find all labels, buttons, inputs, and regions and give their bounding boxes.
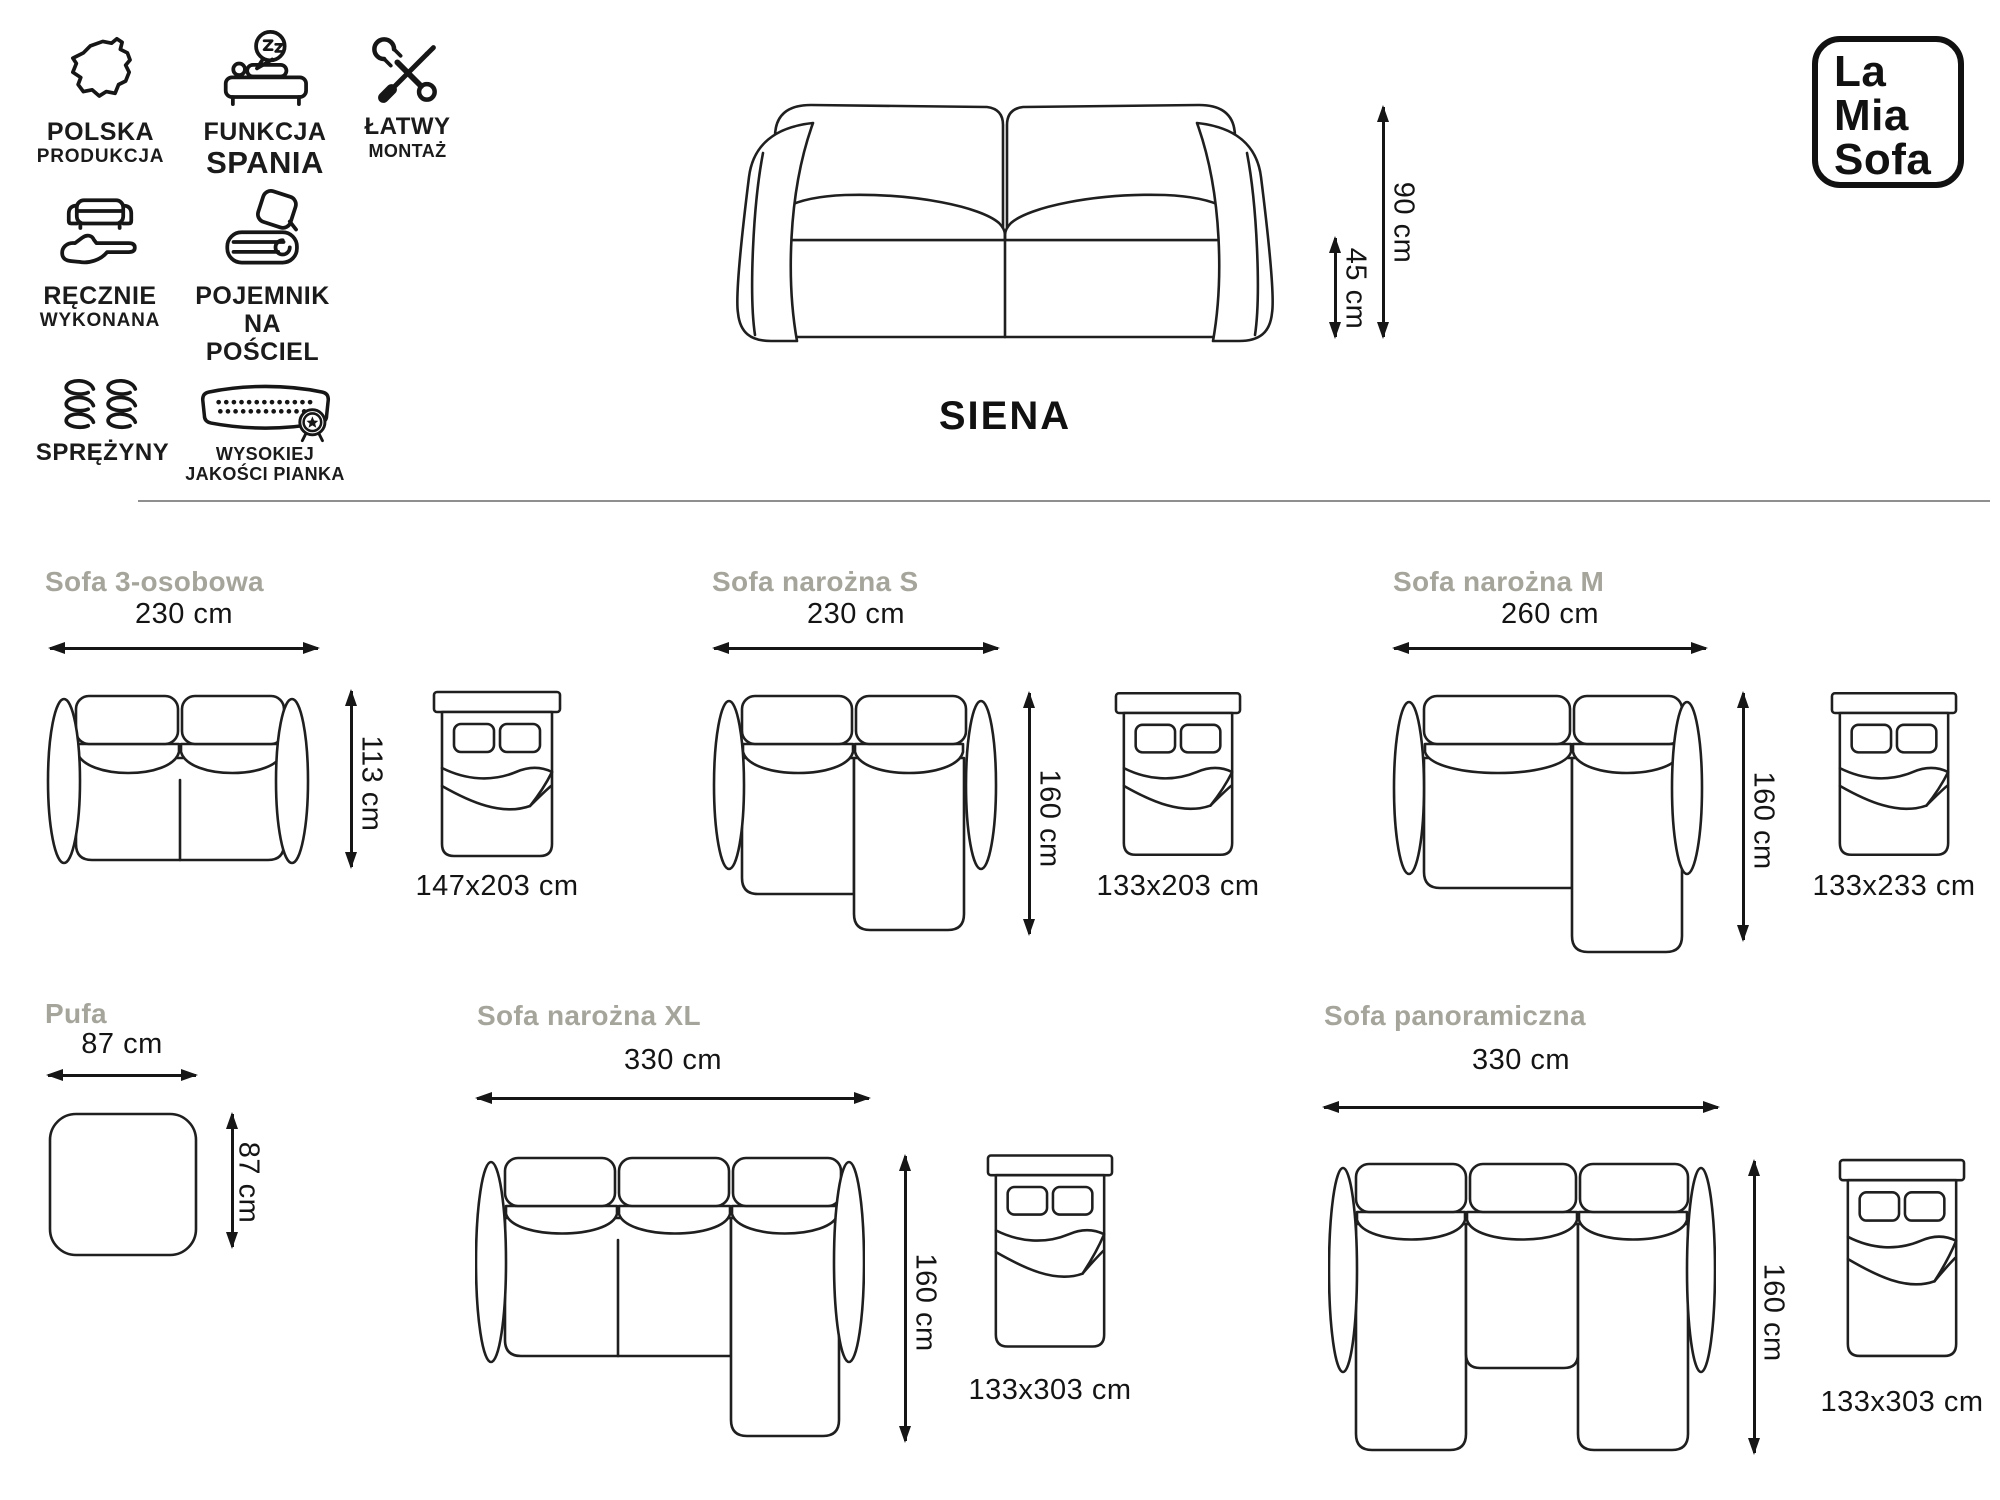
tools-icon — [367, 32, 449, 114]
depth-dimension-arrow — [1742, 693, 1745, 940]
width-dimension-arrow — [48, 1074, 196, 1077]
sofa-top-view-drawing — [44, 688, 312, 866]
feature-label: RĘCZNIE — [43, 282, 156, 310]
width-dimension-label: 260 cm — [1394, 598, 1706, 631]
width-dimension-label: 87 cm — [48, 1028, 196, 1061]
sofa-top-view-drawing — [475, 1152, 865, 1442]
feature-label: POLSKA — [47, 118, 154, 146]
feature-label: JAKOŚCI PIANKA — [185, 464, 345, 484]
feature-polska-produkcja: POLSKA PRODUKCJA — [33, 30, 168, 167]
bed-size-label: 133x303 cm — [1802, 1386, 2000, 1419]
depth-dimension-label: 160 cm — [1033, 770, 1066, 860]
variant-sofa-3-osobowa: Sofa 3-osobowa 230 cm 113 cm — [30, 560, 630, 920]
variant-name: Pufa — [45, 998, 107, 1030]
feature-label: NA POŚCIEL — [185, 310, 340, 366]
height-dimension-label: 90 cm — [1387, 178, 1420, 268]
depth-dimension-arrow — [904, 1156, 907, 1441]
feature-label: SPANIA — [206, 146, 324, 181]
feature-label: FUNKCJA — [204, 118, 327, 146]
depth-dimension-label: 160 cm — [1757, 1264, 1790, 1354]
width-dimension-arrow — [50, 647, 318, 650]
depth-dimension-arrow — [350, 691, 353, 867]
section-divider — [138, 500, 1990, 502]
feature-label: WYKONANA — [40, 310, 160, 331]
feature-recznie-wykonana: RĘCZNIE WYKONANA — [30, 190, 170, 331]
variant-name: Sofa panoramiczna — [1324, 1000, 1586, 1032]
foam-quality-icon — [188, 372, 343, 444]
logo-line: La — [1834, 50, 1958, 94]
bed-size-label: 133x303 cm — [950, 1374, 1150, 1407]
height-dimension-arrow — [1382, 107, 1385, 337]
variant-name: Sofa 3-osobowa — [45, 566, 264, 598]
width-dimension-arrow — [1394, 647, 1706, 650]
seat-height-dimension-arrow — [1334, 238, 1337, 337]
depth-dimension-label: 113 cm — [355, 736, 388, 826]
variant-name: Sofa narożna S — [712, 566, 918, 598]
handmade-icon — [50, 190, 150, 282]
bed-size-label: 133x203 cm — [1078, 870, 1278, 903]
bed-top-view-drawing — [1114, 690, 1242, 860]
bed-top-view-drawing — [1838, 1158, 1966, 1360]
depth-dimension-label: 87 cm — [232, 1138, 265, 1228]
sofa-top-view-drawing — [1328, 1158, 1716, 1456]
feature-latwy-montaz: ŁATWY MONTAŻ — [345, 32, 470, 161]
width-dimension-label: 230 cm — [50, 598, 318, 631]
feature-wysokiej-jakosci-pianka: WYSOKIEJ JAKOŚCI PIANKA — [175, 372, 355, 484]
pouf-top-view-drawing — [47, 1111, 199, 1258]
variant-sofa-narozna-xl: Sofa narożna XL 330 cm 160 cm — [440, 980, 1120, 1440]
variant-sofa-panoramiczna: Sofa panoramiczna 330 cm 160 cm — [1290, 980, 2000, 1450]
bed-top-view-drawing — [1830, 690, 1958, 860]
bed-top-view-drawing — [986, 1152, 1114, 1352]
page-title: SIENA — [845, 394, 1165, 439]
width-dimension-arrow — [1324, 1106, 1718, 1109]
feature-label: SPRĘŻYNY — [36, 440, 169, 467]
feature-label: MONTAŻ — [368, 141, 446, 161]
bed-size-label: 147x203 cm — [397, 870, 597, 903]
springs-icon — [55, 366, 151, 440]
variant-name: Sofa narożna XL — [477, 1000, 701, 1032]
product-dimension-sheet: POLSKA PRODUKCJA FUNKCJA SPANIA — [0, 0, 2000, 1500]
seat-height-dimension-label: 45 cm — [1339, 244, 1372, 334]
feature-label: ŁATWY — [364, 114, 450, 141]
poland-map-icon — [57, 30, 145, 118]
logo-line: Sofa — [1834, 138, 1958, 182]
variant-pufa: Pufa 87 cm 87 cm — [30, 990, 350, 1320]
feature-label: POJEMNIK — [195, 282, 330, 310]
bed-size-label: 133x233 cm — [1794, 870, 1994, 903]
variant-name: Sofa narożna M — [1393, 566, 1604, 598]
sofa-top-view-drawing — [712, 688, 998, 935]
width-dimension-arrow — [714, 647, 998, 650]
width-dimension-label: 230 cm — [714, 598, 998, 631]
bedding-container-icon — [213, 186, 313, 282]
feature-pojemnik-na-posciel: POJEMNIK NA POŚCIEL — [185, 186, 340, 366]
depth-dimension-label: 160 cm — [909, 1254, 942, 1344]
feature-funkcja-spania: FUNKCJA SPANIA — [190, 26, 340, 181]
feature-label: WYSOKIEJ — [216, 444, 314, 464]
width-dimension-arrow — [477, 1097, 869, 1100]
depth-dimension-label: 160 cm — [1747, 772, 1780, 862]
width-dimension-label: 330 cm — [1324, 1044, 1718, 1077]
variant-sofa-narozna-s: Sofa narożna S 230 cm 160 cm — [700, 560, 1320, 960]
la-mia-sofa-logo: La Mia Sofa — [1812, 36, 1964, 188]
feature-label: PRODUKCJA — [37, 146, 165, 167]
sofa-top-view-drawing — [1392, 688, 1704, 958]
sofa-front-view-drawing — [705, 95, 1305, 345]
width-dimension-label: 330 cm — [477, 1044, 869, 1077]
sleep-function-icon — [215, 26, 315, 118]
feature-sprezyny: SPRĘŻYNY — [35, 366, 170, 467]
variant-sofa-narozna-m: Sofa narożna M 260 cm 160 cm — [1380, 560, 2000, 960]
depth-dimension-arrow — [1028, 693, 1031, 934]
bed-top-view-drawing — [432, 690, 562, 860]
logo-line: Mia — [1834, 94, 1958, 138]
